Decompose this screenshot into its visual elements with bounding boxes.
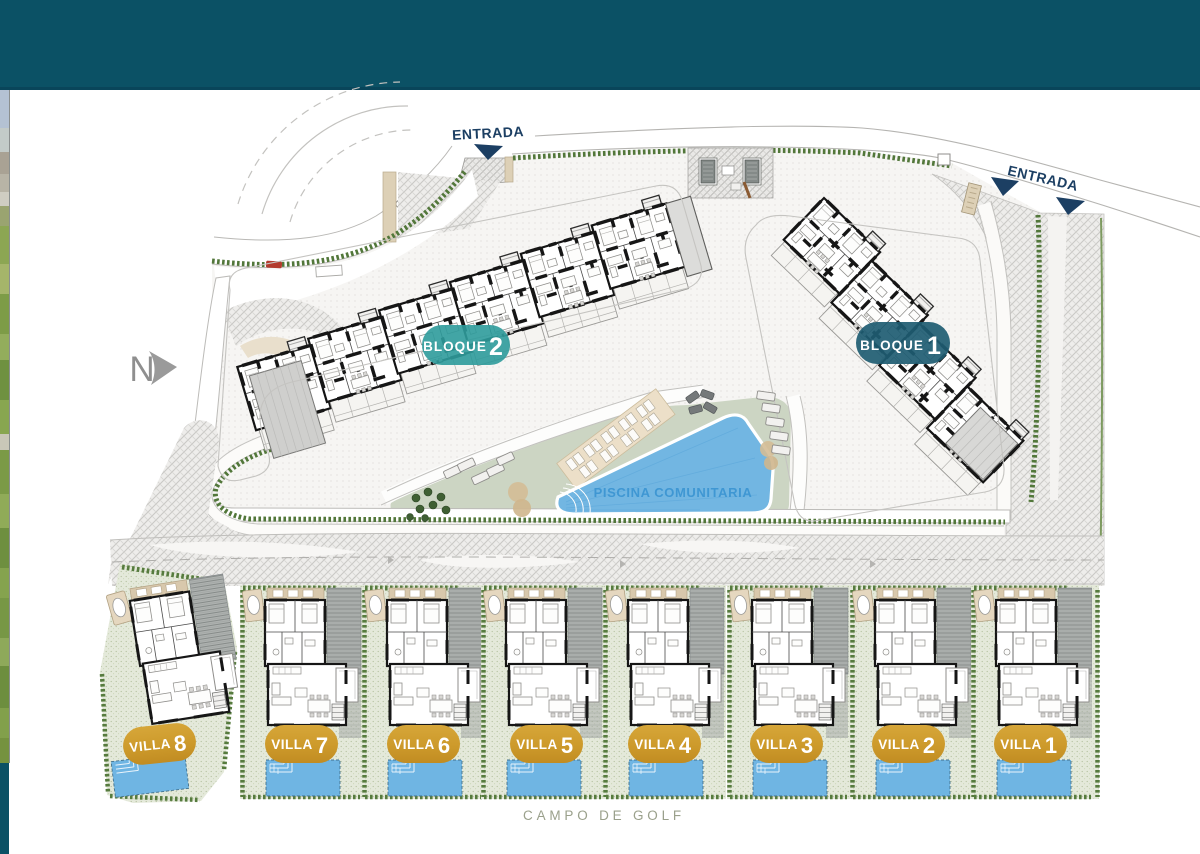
svg-text:4: 4 [679,733,692,758]
svg-text:BLOQUE: BLOQUE [860,338,924,353]
svg-text:6: 6 [438,733,450,758]
svg-text:CAMPO DE GOLF: CAMPO DE GOLF [523,808,685,823]
svg-text:1: 1 [1045,733,1057,758]
svg-text:VILLA: VILLA [393,737,435,752]
svg-text:2: 2 [923,733,935,758]
svg-text:8: 8 [173,730,188,756]
svg-text:VILLA: VILLA [756,737,798,752]
svg-text:PISCINA COMUNITARIA: PISCINA COMUNITARIA [594,485,753,500]
svg-text:5: 5 [561,733,573,758]
svg-text:VILLA: VILLA [878,737,920,752]
svg-text:7: 7 [316,733,328,758]
svg-text:BLOQUE: BLOQUE [423,339,487,354]
svg-text:VILLA: VILLA [516,737,558,752]
svg-text:2: 2 [489,333,503,361]
svg-text:VILLA: VILLA [1000,737,1042,752]
svg-text:3: 3 [801,733,813,758]
svg-text:N: N [129,350,154,389]
svg-text:1: 1 [927,332,941,360]
svg-text:VILLA: VILLA [271,737,313,752]
svg-text:VILLA: VILLA [634,737,676,752]
